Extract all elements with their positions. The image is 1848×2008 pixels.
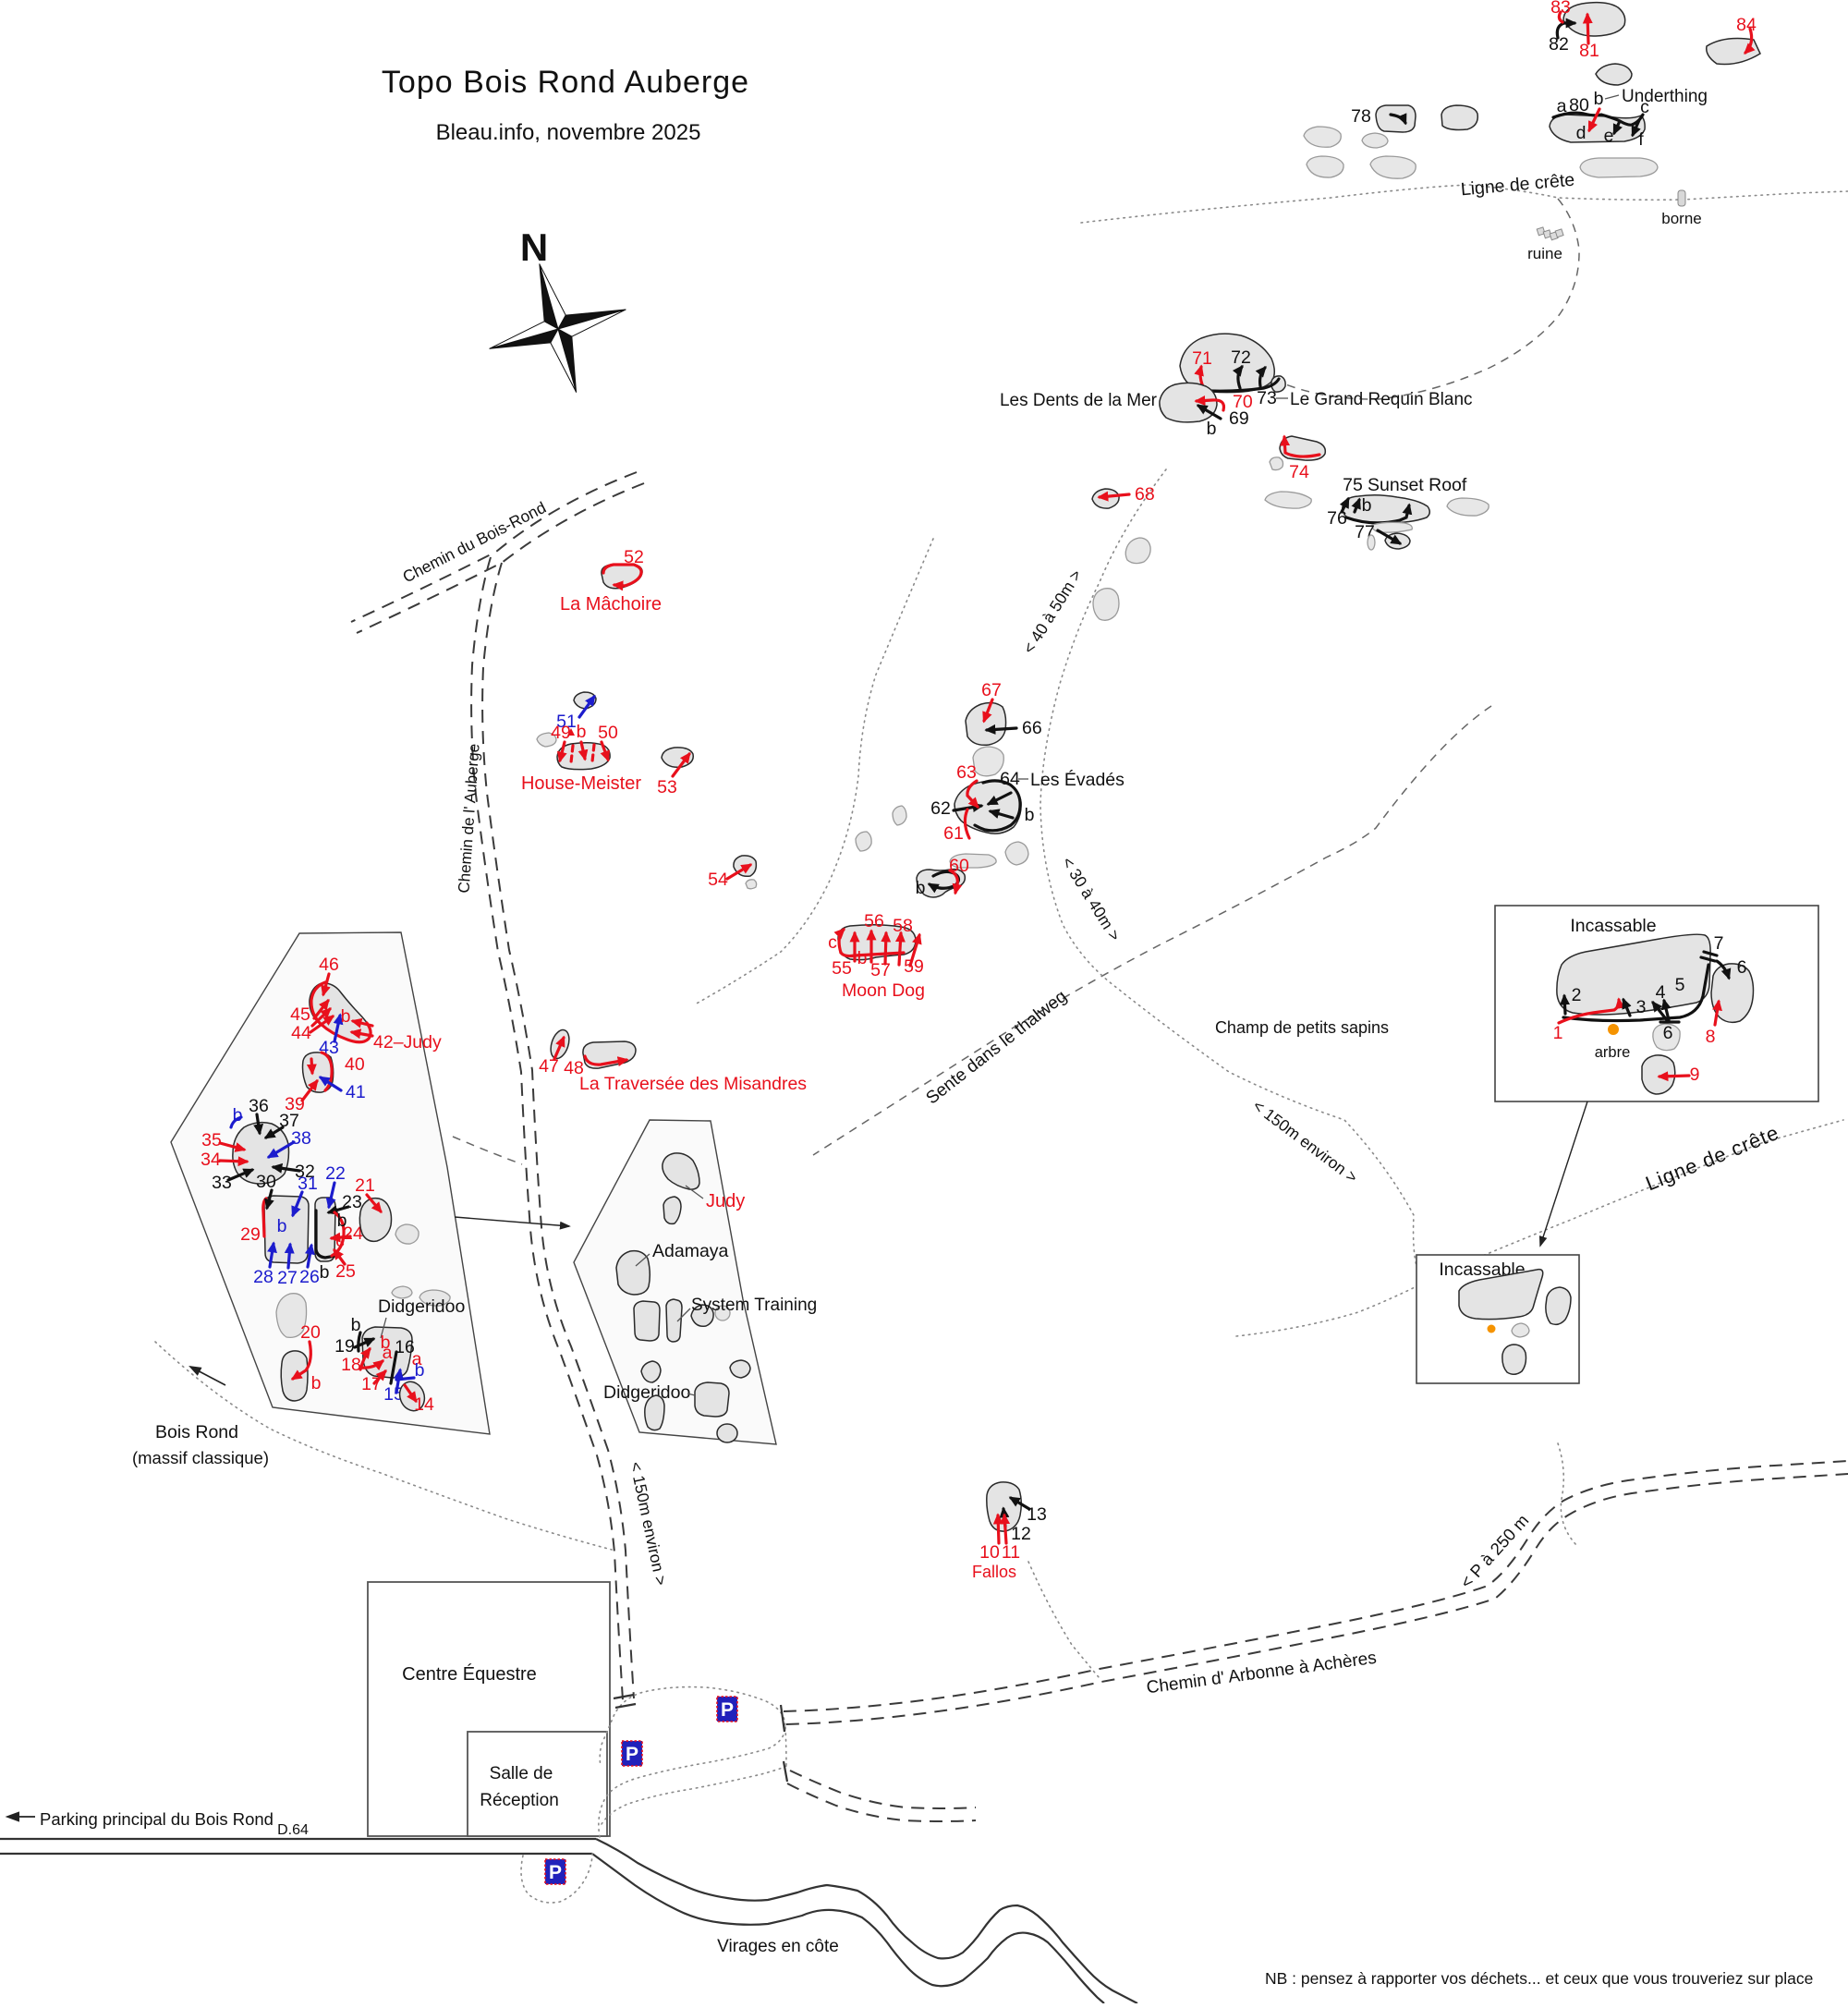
svg-text:N: N: [520, 225, 548, 269]
svg-text:50: 50: [598, 723, 618, 743]
svg-text:14: 14: [414, 1394, 434, 1415]
svg-text:c: c: [1640, 97, 1649, 117]
svg-text:b: b: [1207, 419, 1217, 439]
svg-text:Virages en côte: Virages en côte: [717, 1937, 839, 1956]
svg-text:Les Évadés: Les Évadés: [1030, 769, 1125, 790]
svg-text:b: b: [1594, 89, 1604, 109]
svg-text:P: P: [721, 1699, 734, 1721]
svg-text:30: 30: [256, 1172, 276, 1192]
svg-text:Didgeridoo: Didgeridoo: [378, 1296, 465, 1317]
svg-text:47: 47: [539, 1056, 559, 1077]
svg-text:Adamaya: Adamaya: [652, 1241, 729, 1261]
svg-text:74: 74: [1289, 462, 1309, 482]
svg-text:36: 36: [249, 1096, 269, 1116]
svg-text:82: 82: [1549, 34, 1569, 55]
svg-text:58: 58: [893, 916, 913, 936]
svg-text:10: 10: [979, 1542, 1000, 1563]
svg-text:26: 26: [299, 1267, 320, 1287]
svg-text:63: 63: [956, 762, 977, 783]
svg-text:b: b: [233, 1105, 243, 1126]
svg-text:P: P: [626, 1744, 638, 1765]
svg-text:b: b: [916, 878, 926, 898]
svg-text:19: 19: [334, 1336, 355, 1357]
svg-text:11: 11: [1002, 1542, 1020, 1563]
svg-text:Bleau.info, novembre 2025: Bleau.info, novembre 2025: [436, 120, 701, 145]
svg-text:Topo Bois Rond Auberge: Topo Bois Rond Auberge: [382, 65, 749, 100]
svg-text:64: 64: [1000, 769, 1020, 789]
svg-text:35: 35: [201, 1130, 222, 1150]
svg-text:33: 33: [212, 1173, 232, 1193]
svg-text:62: 62: [930, 798, 951, 819]
svg-text:Sunset Roof: Sunset Roof: [1368, 475, 1467, 495]
svg-text:72: 72: [1231, 347, 1251, 368]
svg-text:System Training: System Training: [691, 1296, 817, 1315]
svg-text:52: 52: [624, 547, 644, 567]
svg-text:e: e: [1604, 126, 1614, 146]
svg-text:38: 38: [291, 1128, 311, 1149]
svg-text:53: 53: [657, 777, 677, 797]
svg-text:La Mâchoire: La Mâchoire: [560, 594, 662, 615]
svg-text:13: 13: [1027, 1504, 1047, 1525]
svg-text:1: 1: [1553, 1023, 1563, 1043]
svg-text:81: 81: [1579, 41, 1599, 61]
svg-text:8: 8: [1706, 1027, 1716, 1047]
svg-text:17: 17: [361, 1374, 382, 1394]
svg-text:Centre Équestre: Centre Équestre: [402, 1663, 537, 1685]
svg-text:9: 9: [1690, 1065, 1700, 1085]
svg-text:b: b: [857, 948, 868, 968]
svg-text:29: 29: [240, 1224, 261, 1245]
svg-text:76: 76: [1327, 508, 1347, 529]
svg-text:21: 21: [355, 1175, 375, 1196]
svg-text:66: 66: [1022, 718, 1042, 738]
svg-text:3: 3: [1636, 997, 1647, 1017]
svg-text:b: b: [341, 1006, 351, 1027]
svg-text:68: 68: [1135, 484, 1155, 505]
svg-text:borne: borne: [1661, 210, 1701, 227]
svg-text:45: 45: [290, 1004, 310, 1025]
svg-text:60: 60: [949, 856, 969, 876]
svg-text:Le Grand Requin Blanc: Le Grand Requin Blanc: [1290, 390, 1473, 409]
svg-text:a: a: [1557, 96, 1567, 116]
svg-text:Bois Rond: Bois Rond: [155, 1422, 238, 1442]
svg-text:6: 6: [1663, 1023, 1673, 1043]
svg-text:c: c: [335, 1231, 345, 1251]
svg-text:4: 4: [1656, 982, 1666, 1003]
svg-text:House-Meister: House-Meister: [521, 773, 641, 794]
svg-text:56: 56: [864, 911, 884, 931]
svg-text:78: 78: [1351, 106, 1371, 127]
svg-text:40: 40: [345, 1054, 365, 1075]
svg-text:P: P: [549, 1862, 562, 1883]
svg-text:34: 34: [201, 1150, 221, 1170]
svg-text:Fallos: Fallos: [972, 1563, 1016, 1581]
svg-text:54: 54: [708, 870, 728, 890]
svg-text:d: d: [1576, 123, 1587, 143]
svg-text:84: 84: [1736, 15, 1757, 35]
svg-text:31: 31: [298, 1174, 318, 1194]
svg-text:a: a: [383, 1343, 393, 1363]
svg-text:49: 49: [551, 723, 571, 743]
svg-text:18: 18: [341, 1355, 361, 1375]
svg-text:20: 20: [300, 1322, 321, 1343]
svg-text:ruine: ruine: [1527, 245, 1562, 262]
svg-text:61: 61: [943, 823, 964, 844]
svg-text:5: 5: [1675, 975, 1685, 995]
svg-text:Salle de: Salle de: [490, 1764, 553, 1783]
svg-text:Judy: Judy: [706, 1191, 745, 1211]
svg-text:12: 12: [1011, 1524, 1031, 1544]
svg-text:Incassable: Incassable: [1570, 916, 1656, 936]
svg-text:83: 83: [1550, 0, 1571, 18]
svg-text:28: 28: [253, 1267, 274, 1287]
svg-text:22: 22: [325, 1163, 346, 1184]
svg-text:55: 55: [832, 958, 852, 979]
svg-text:b: b: [1025, 805, 1035, 825]
svg-text:69: 69: [1229, 408, 1249, 429]
svg-text:59: 59: [904, 956, 924, 977]
svg-text:b: b: [320, 1262, 330, 1283]
svg-text:75: 75: [1343, 475, 1363, 495]
svg-text:b: b: [1362, 495, 1372, 516]
svg-text:Les Dents de la Mer: Les Dents de la Mer: [1000, 391, 1158, 410]
svg-text:27: 27: [277, 1268, 298, 1288]
svg-text:Parking principal du Bois Rond: Parking principal du Bois Rond: [40, 1809, 274, 1829]
svg-text:(massif classique): (massif classique): [132, 1448, 269, 1467]
svg-text:arbre: arbre: [1595, 1044, 1631, 1061]
svg-text:Didgeridoo: Didgeridoo: [603, 1382, 690, 1403]
svg-text:NB : pensez à rapporter vos dé: NB : pensez à rapporter vos déchets... e…: [1265, 1969, 1813, 1988]
svg-text:f: f: [1638, 129, 1644, 150]
svg-text:Réception: Réception: [480, 1791, 559, 1810]
svg-text:Underthing: Underthing: [1622, 87, 1708, 106]
svg-text:Moon Dog: Moon Dog: [842, 980, 925, 1001]
svg-text:7: 7: [1714, 933, 1724, 954]
svg-text:41: 41: [346, 1082, 366, 1102]
svg-text:25: 25: [335, 1261, 356, 1282]
svg-text:b: b: [277, 1216, 287, 1236]
svg-text:67: 67: [981, 680, 1002, 700]
svg-text:b: b: [351, 1315, 361, 1335]
svg-text:80: 80: [1569, 95, 1589, 116]
svg-text:b: b: [415, 1360, 425, 1381]
svg-text:2: 2: [1572, 985, 1582, 1005]
svg-text:b: b: [577, 722, 587, 742]
svg-text:6: 6: [1737, 957, 1747, 978]
svg-text:c: c: [828, 932, 837, 953]
svg-text:57: 57: [870, 960, 891, 980]
svg-text:46: 46: [319, 955, 339, 975]
svg-text:44: 44: [291, 1023, 311, 1043]
svg-text:Champ de petits sapins: Champ de petits sapins: [1215, 1018, 1389, 1037]
svg-text:D.64: D.64: [277, 1822, 309, 1838]
svg-text:73: 73: [1257, 388, 1277, 408]
svg-text:42–Judy: 42–Judy: [373, 1032, 442, 1053]
svg-text:La Traversée des Misandres: La Traversée des Misandres: [579, 1074, 807, 1094]
svg-text:71: 71: [1192, 348, 1212, 369]
svg-text:b: b: [311, 1373, 322, 1393]
